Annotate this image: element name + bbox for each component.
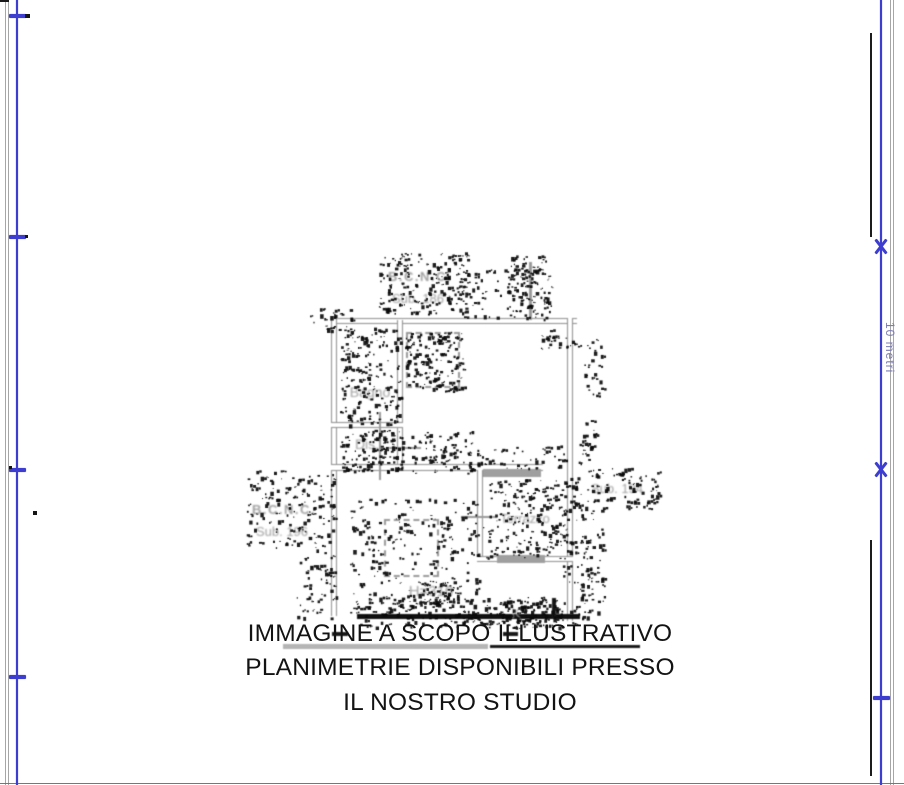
floorplan-scan-page: { "page": { "overlay": { "lines": [ "IMM… bbox=[0, 0, 904, 785]
disclaimer-line-2: PLANIMETRIE DISPONIBILI PRESSO bbox=[108, 651, 812, 685]
disclaimer-line-1: IMMAGINE A SCOPO ILLUSTRATIVO bbox=[108, 617, 812, 651]
disclaimer-line-3: IL NOSTRO STUDIO bbox=[108, 686, 812, 720]
disclaimer-text: IMMAGINE A SCOPO ILLUSTRATIVO PLANIMETRI… bbox=[108, 617, 812, 720]
